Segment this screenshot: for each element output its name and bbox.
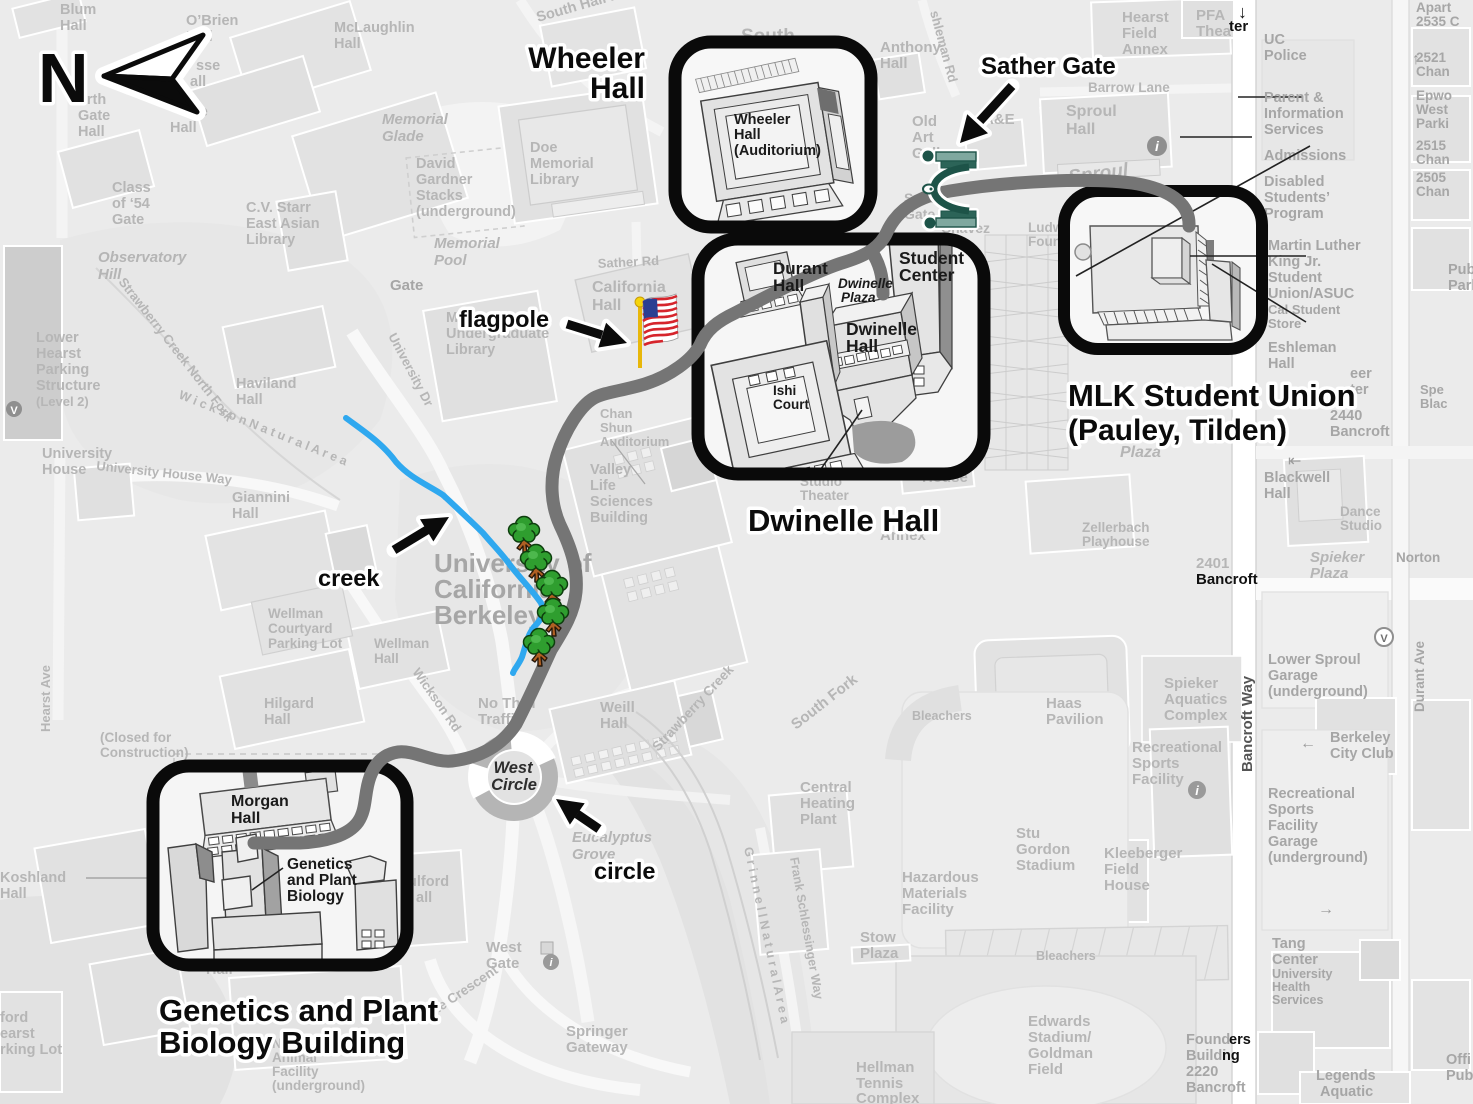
svg-text:California: California bbox=[592, 279, 666, 296]
svg-text:Parent &: Parent & bbox=[1264, 90, 1324, 106]
svg-text:Goldman: Goldman bbox=[1028, 1045, 1093, 1062]
svg-text:House: House bbox=[1104, 877, 1150, 894]
svg-text:Blac: Blac bbox=[1420, 396, 1447, 411]
svg-text:Hellman: Hellman bbox=[856, 1059, 914, 1076]
svg-text:ng: ng bbox=[1222, 1048, 1240, 1064]
svg-text:Hall: Hall bbox=[773, 276, 804, 295]
svg-text:ers: ers bbox=[1229, 1032, 1251, 1048]
svg-text:Garage: Garage bbox=[1268, 834, 1318, 850]
svg-text:Hall: Hall bbox=[374, 651, 399, 666]
svg-text:Student: Student bbox=[1268, 270, 1322, 286]
svg-text:Chan: Chan bbox=[1416, 184, 1450, 199]
svg-text:Buildi: Buildi bbox=[1186, 1048, 1226, 1064]
svg-text:Kleeberger: Kleeberger bbox=[1104, 845, 1183, 862]
svg-text:creek: creek bbox=[318, 565, 380, 591]
svg-text:Services: Services bbox=[1272, 993, 1323, 1007]
svg-text:↑: ↑ bbox=[1412, 51, 1420, 68]
svg-text:←: ← bbox=[1300, 735, 1316, 752]
svg-text:Plant: Plant bbox=[800, 811, 837, 828]
svg-text:all: all bbox=[416, 890, 432, 906]
svg-text:West: West bbox=[493, 759, 534, 777]
svg-text:Anthony: Anthony bbox=[880, 39, 941, 56]
svg-text:Hall: Hall bbox=[334, 36, 361, 52]
svg-text:earst: earst bbox=[0, 1026, 35, 1042]
svg-text:Hall: Hall bbox=[1066, 121, 1095, 138]
svg-text:Library: Library bbox=[246, 232, 295, 248]
svg-text:Dwinelle Hall: Dwinelle Hall bbox=[748, 503, 939, 538]
svg-text:Facility: Facility bbox=[902, 901, 954, 918]
svg-text:2505: 2505 bbox=[1416, 170, 1447, 185]
svg-text:Structure: Structure bbox=[36, 378, 100, 394]
svg-text:East Asian: East Asian bbox=[246, 216, 320, 232]
svg-text:Sports: Sports bbox=[1268, 802, 1314, 818]
svg-text:V: V bbox=[10, 405, 18, 417]
svg-text:Disabled: Disabled bbox=[1264, 174, 1324, 190]
svg-text:2515: 2515 bbox=[1416, 138, 1447, 153]
svg-text:Theater: Theater bbox=[800, 488, 850, 503]
svg-text:Hall: Hall bbox=[590, 72, 645, 105]
svg-text:(underground): (underground) bbox=[1268, 850, 1368, 866]
svg-text:N: N bbox=[38, 39, 89, 117]
svg-text:Auditorium: Auditorium bbox=[600, 434, 669, 449]
svg-text:Police: Police bbox=[1264, 48, 1307, 64]
svg-text:Hall: Hall bbox=[60, 18, 87, 34]
svg-text:Building: Building bbox=[590, 510, 648, 526]
svg-text:Sather Rd: Sather Rd bbox=[597, 253, 659, 271]
svg-text:Haas: Haas bbox=[1046, 695, 1082, 712]
svg-text:Hall: Hall bbox=[264, 712, 291, 728]
svg-text:C.V. Starr: C.V. Starr bbox=[246, 200, 311, 216]
svg-text:Hall: Hall bbox=[78, 124, 105, 140]
svg-text:Library: Library bbox=[530, 172, 579, 188]
svg-text:Recreational: Recreational bbox=[1268, 786, 1355, 802]
svg-text:Hazardous: Hazardous bbox=[902, 869, 979, 886]
svg-text:Health: Health bbox=[1272, 980, 1310, 994]
svg-text:Gordon: Gordon bbox=[1016, 841, 1070, 858]
svg-text:Field: Field bbox=[1028, 1061, 1063, 1078]
svg-text:Bancroft: Bancroft bbox=[1330, 424, 1390, 440]
svg-text:Class: Class bbox=[112, 180, 151, 196]
svg-text:Durant Ave: Durant Ave bbox=[1412, 640, 1427, 712]
svg-text:Spieker: Spieker bbox=[1164, 675, 1218, 692]
svg-text:Eucalyptus: Eucalyptus bbox=[572, 829, 652, 846]
svg-text:Biology Building: Biology Building bbox=[159, 1025, 405, 1060]
svg-text:Edwards: Edwards bbox=[1028, 1013, 1091, 1030]
svg-text:2535 C: 2535 C bbox=[1416, 14, 1460, 29]
svg-text:Plaza: Plaza bbox=[860, 945, 899, 962]
svg-text:Bancroft Way: Bancroft Way bbox=[1239, 675, 1256, 772]
svg-text:Aquatics: Aquatics bbox=[1164, 691, 1227, 708]
svg-text:Pub: Pub bbox=[1446, 1068, 1473, 1084]
svg-text:Bleachers: Bleachers bbox=[1036, 949, 1096, 963]
svg-text:V: V bbox=[1380, 633, 1388, 645]
svg-text:City Club: City Club bbox=[1330, 746, 1394, 762]
svg-text:→: → bbox=[1318, 901, 1334, 918]
svg-text:Wellman: Wellman bbox=[268, 606, 323, 621]
svg-text:(Level 2): (Level 2) bbox=[36, 394, 89, 409]
svg-text:Hall: Hall bbox=[232, 506, 259, 522]
svg-text:Sather Gate: Sather Gate bbox=[981, 53, 1116, 80]
svg-text:Library: Library bbox=[446, 342, 495, 358]
svg-text:Circle: Circle bbox=[491, 776, 537, 794]
svg-text:Sproul: Sproul bbox=[1066, 103, 1117, 120]
svg-text:Shun: Shun bbox=[600, 420, 633, 435]
svg-text:Dwinelle: Dwinelle bbox=[838, 276, 893, 291]
svg-text:Blackwell: Blackwell bbox=[1264, 470, 1330, 486]
svg-text:i: i bbox=[1195, 783, 1199, 798]
svg-text:⇤: ⇤ bbox=[1288, 453, 1301, 470]
svg-text:Weill: Weill bbox=[600, 699, 635, 716]
svg-text:Studio: Studio bbox=[1340, 518, 1382, 533]
svg-text:Hilgard: Hilgard bbox=[264, 696, 314, 712]
svg-text:Admissions: Admissions bbox=[1264, 148, 1346, 164]
svg-text:Courtyard: Courtyard bbox=[268, 621, 333, 636]
svg-text:Plaza: Plaza bbox=[1310, 565, 1348, 582]
svg-text:Facility: Facility bbox=[272, 1064, 319, 1079]
svg-text:Memorial: Memorial bbox=[434, 235, 501, 252]
svg-text:Hall: Hall bbox=[592, 297, 621, 314]
svg-text:Services: Services bbox=[1264, 122, 1324, 138]
svg-text:Eshleman: Eshleman bbox=[1268, 340, 1337, 356]
svg-text:Sciences: Sciences bbox=[590, 494, 653, 510]
svg-text:Center: Center bbox=[899, 265, 955, 285]
svg-text:Spieker: Spieker bbox=[1310, 549, 1365, 566]
svg-text:Information: Information bbox=[1264, 106, 1344, 122]
svg-text:Wheeler: Wheeler bbox=[528, 42, 645, 75]
svg-text:Genetics and Plant: Genetics and Plant bbox=[159, 993, 438, 1028]
svg-text:Stow: Stow bbox=[860, 929, 896, 946]
svg-text:ulford: ulford bbox=[408, 874, 449, 890]
svg-text:Parking Lot: Parking Lot bbox=[268, 636, 343, 651]
svg-text:Valley: Valley bbox=[590, 462, 631, 478]
svg-text:Cal Student: Cal Student bbox=[1268, 302, 1341, 317]
svg-text:and Plant: and Plant bbox=[287, 872, 357, 889]
svg-text:Hall: Hall bbox=[846, 336, 878, 356]
svg-text:Life: Life bbox=[590, 478, 616, 494]
svg-text:Ishi: Ishi bbox=[773, 383, 796, 398]
svg-text:Hall: Hall bbox=[734, 127, 761, 143]
svg-text:Wellman: Wellman bbox=[374, 636, 429, 651]
svg-text:Stu: Stu bbox=[1016, 825, 1040, 842]
svg-text:MLK Student Union: MLK Student Union bbox=[1068, 378, 1356, 413]
svg-text:David: David bbox=[416, 156, 456, 172]
svg-text:West: West bbox=[486, 939, 522, 956]
svg-text:Parki: Parki bbox=[1416, 116, 1449, 131]
svg-text:(underground): (underground) bbox=[416, 204, 516, 220]
svg-text:Union/ASUC: Union/ASUC bbox=[1268, 286, 1355, 302]
svg-text:Stadium: Stadium bbox=[1016, 857, 1075, 874]
svg-text:Hall: Hall bbox=[170, 120, 197, 136]
svg-text:Springer: Springer bbox=[566, 1023, 628, 1040]
svg-text:Gardner: Gardner bbox=[416, 172, 473, 188]
svg-text:Berkeley: Berkeley bbox=[1330, 730, 1390, 746]
svg-text:Park: Park bbox=[1448, 278, 1473, 294]
svg-text:Norton: Norton bbox=[1396, 550, 1440, 565]
svg-text:Program: Program bbox=[1264, 206, 1324, 222]
svg-text:(Pauley, Tilden): (Pauley, Tilden) bbox=[1068, 414, 1287, 447]
svg-text:Barrow Lane: Barrow Lane bbox=[1088, 80, 1170, 95]
svg-text:Hall: Hall bbox=[236, 392, 263, 408]
svg-text:(Auditorium): (Auditorium) bbox=[734, 143, 821, 159]
svg-text:↓: ↓ bbox=[1238, 2, 1247, 22]
svg-text:Parking: Parking bbox=[36, 362, 89, 378]
svg-text:Aquatic: Aquatic bbox=[1320, 1084, 1373, 1100]
svg-text:Hall: Hall bbox=[1268, 356, 1295, 372]
svg-text:Gate: Gate bbox=[390, 277, 423, 294]
svg-text:Old: Old bbox=[912, 113, 937, 130]
svg-text:Haviland: Haviland bbox=[236, 376, 296, 392]
svg-text:Found: Found bbox=[1186, 1032, 1230, 1048]
svg-text:Martin Luther: Martin Luther bbox=[1268, 238, 1361, 254]
svg-text:2220: 2220 bbox=[1186, 1064, 1218, 1080]
svg-text:Pub: Pub bbox=[1448, 262, 1473, 278]
svg-text:Stadium/: Stadium/ bbox=[1028, 1029, 1092, 1046]
svg-text:PFA: PFA bbox=[1196, 7, 1225, 24]
svg-text:Hall: Hall bbox=[600, 715, 628, 732]
svg-text:Lower: Lower bbox=[36, 330, 79, 346]
svg-text:Plaza: Plaza bbox=[841, 290, 876, 305]
svg-text:Hall: Hall bbox=[880, 55, 908, 72]
svg-text:Dance: Dance bbox=[1340, 504, 1381, 519]
svg-text:Giannini: Giannini bbox=[232, 490, 290, 506]
svg-text:Hall: Hall bbox=[1264, 486, 1291, 502]
svg-text:Hearst Ave: Hearst Ave bbox=[38, 665, 53, 732]
svg-text:Students’: Students’ bbox=[1264, 190, 1330, 206]
svg-text:Chan: Chan bbox=[600, 406, 633, 421]
svg-text:Pool: Pool bbox=[434, 252, 467, 269]
svg-text:Memorial: Memorial bbox=[530, 156, 594, 172]
svg-text:Genetics: Genetics bbox=[287, 856, 352, 873]
svg-text:Morgan: Morgan bbox=[231, 793, 289, 810]
svg-text:Offi: Offi bbox=[1446, 1052, 1471, 1068]
svg-text:Wheeler: Wheeler bbox=[734, 112, 791, 128]
svg-text:Bancroft: Bancroft bbox=[1186, 1080, 1246, 1096]
svg-text:Apart: Apart bbox=[1416, 0, 1452, 15]
svg-text:flagpole: flagpole bbox=[459, 306, 549, 332]
svg-text:M: M bbox=[446, 310, 458, 326]
svg-text:Berkeley: Berkeley bbox=[434, 600, 543, 630]
svg-text:Hall: Hall bbox=[231, 810, 260, 827]
svg-text:Construction): Construction) bbox=[100, 745, 189, 760]
svg-text:Tang: Tang bbox=[1272, 936, 1306, 952]
svg-text:Legends: Legends bbox=[1316, 1068, 1376, 1084]
svg-text:Doe: Doe bbox=[530, 140, 557, 156]
svg-text:Koshland: Koshland bbox=[0, 870, 66, 886]
svg-text:Central: Central bbox=[800, 779, 852, 796]
svg-text:2401: 2401 bbox=[1196, 555, 1229, 572]
svg-text:Glade: Glade bbox=[382, 128, 424, 145]
svg-text:Observatory: Observatory bbox=[98, 249, 187, 266]
svg-text:O’Brien: O’Brien bbox=[186, 13, 238, 29]
svg-text:Thea: Thea bbox=[1196, 23, 1232, 40]
svg-text:Recreational: Recreational bbox=[1132, 739, 1222, 756]
svg-text:circle: circle bbox=[594, 858, 655, 884]
svg-text:Complex: Complex bbox=[856, 1090, 920, 1104]
svg-text:Heating: Heating bbox=[800, 795, 855, 812]
svg-text:ford: ford bbox=[0, 1010, 28, 1026]
svg-text:Bleachers: Bleachers bbox=[912, 709, 972, 723]
svg-text:(underground): (underground) bbox=[272, 1078, 365, 1093]
svg-text:Store: Store bbox=[1268, 316, 1301, 331]
svg-text:House: House bbox=[42, 462, 86, 478]
svg-text:Annex: Annex bbox=[1122, 41, 1169, 58]
svg-text:Bancroft: Bancroft bbox=[1196, 571, 1258, 588]
svg-text:Court: Court bbox=[773, 397, 809, 412]
svg-text:Chan: Chan bbox=[1416, 64, 1450, 79]
svg-text:Memorial: Memorial bbox=[382, 111, 449, 128]
svg-text:Spe: Spe bbox=[1420, 382, 1444, 397]
svg-text:2521: 2521 bbox=[1416, 50, 1447, 65]
svg-text:Epwo: Epwo bbox=[1416, 88, 1452, 103]
svg-text:Gateway: Gateway bbox=[566, 1039, 628, 1056]
svg-text:Stacks: Stacks bbox=[416, 188, 463, 204]
svg-text:Hearst: Hearst bbox=[36, 346, 81, 362]
svg-text:University: University bbox=[1272, 967, 1332, 981]
svg-text:all: all bbox=[190, 74, 206, 90]
svg-text:(Closed for: (Closed for bbox=[100, 730, 172, 745]
svg-text:UC: UC bbox=[1264, 32, 1285, 48]
svg-text:Art: Art bbox=[912, 129, 934, 146]
svg-text:Facility: Facility bbox=[1132, 771, 1184, 788]
svg-text:West: West bbox=[1416, 102, 1449, 117]
svg-text:Pavilion: Pavilion bbox=[1046, 711, 1104, 728]
svg-text:McLaughlin: McLaughlin bbox=[334, 20, 415, 36]
svg-text:Field: Field bbox=[1122, 25, 1157, 42]
svg-text:Chan: Chan bbox=[1416, 152, 1450, 167]
svg-text:(underground): (underground) bbox=[1268, 684, 1368, 700]
svg-text:Gate: Gate bbox=[112, 212, 144, 228]
svg-text:Lower Sproul: Lower Sproul bbox=[1268, 652, 1361, 668]
svg-text:Sports: Sports bbox=[1132, 755, 1180, 772]
svg-text:Facility: Facility bbox=[1268, 818, 1318, 834]
svg-text:Blum: Blum bbox=[60, 2, 96, 18]
svg-text:Hall: Hall bbox=[0, 886, 27, 902]
svg-text:rking Lot: rking Lot bbox=[0, 1042, 62, 1058]
svg-text:Complex: Complex bbox=[1164, 707, 1228, 724]
svg-text:Zellerbach: Zellerbach bbox=[1082, 520, 1150, 535]
svg-text:Materials: Materials bbox=[902, 885, 967, 902]
svg-text:Field: Field bbox=[1104, 861, 1139, 878]
svg-text:of ‘54: of ‘54 bbox=[112, 196, 150, 212]
svg-text:Playhouse: Playhouse bbox=[1082, 534, 1150, 549]
svg-text:Hearst: Hearst bbox=[1122, 9, 1169, 26]
svg-text:sse: sse bbox=[196, 58, 220, 74]
svg-text:Garage: Garage bbox=[1268, 668, 1318, 684]
svg-text:Center: Center bbox=[1272, 952, 1318, 968]
svg-text:Biology: Biology bbox=[287, 888, 344, 905]
